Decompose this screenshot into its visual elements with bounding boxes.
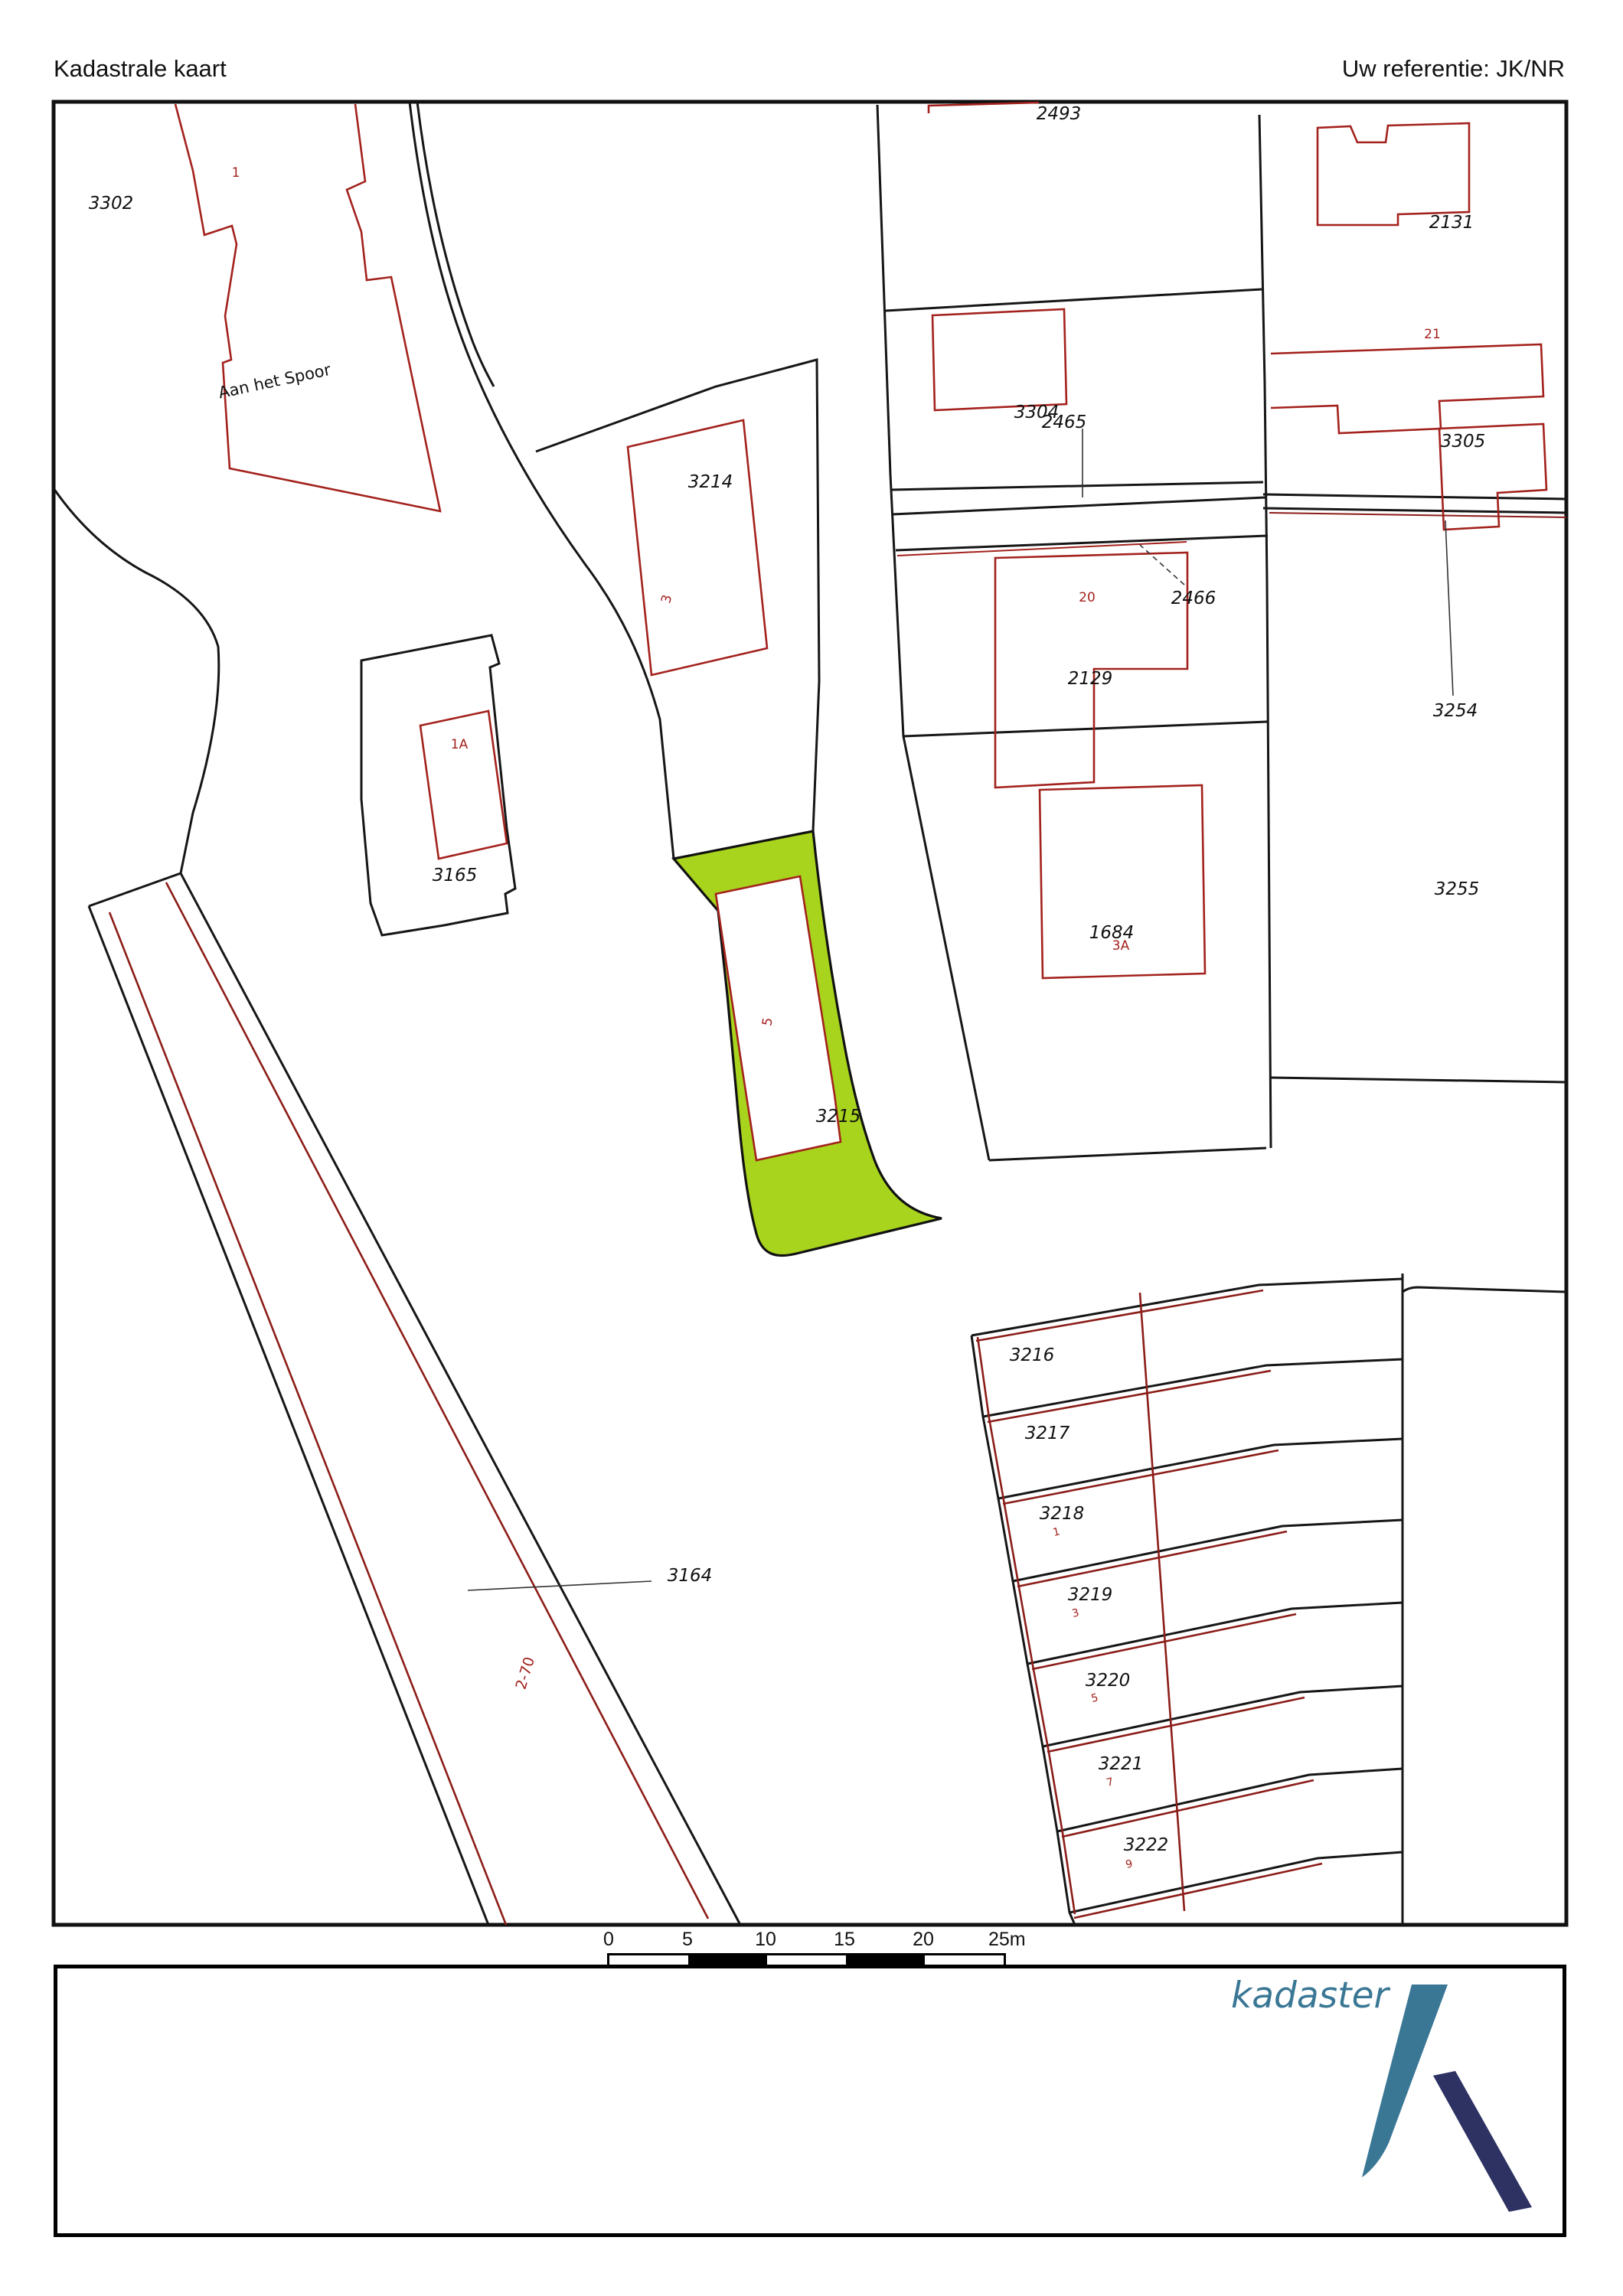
parcel-label: 2465 [1042, 413, 1087, 432]
scale-tick-20: 20 [912, 1929, 935, 1951]
parcel-label: 3218 [1040, 1504, 1085, 1524]
logo-stroke-navy [1433, 2071, 1532, 2212]
parcel-label: 3254 [1433, 701, 1478, 721]
parcel-label: 2466 [1171, 589, 1216, 608]
house-number: 1 [232, 165, 240, 181]
parcel-label: 2131 [1429, 213, 1474, 233]
parcel-label: 2129 [1068, 669, 1113, 689]
parcel-label: 3165 [433, 866, 478, 885]
scale-tick-10: 10 [754, 1929, 777, 1951]
parcel-label: 3219 [1068, 1585, 1113, 1605]
scale-tick-25m: 25m [988, 1929, 1022, 1951]
parcel-label: 3217 [1025, 1424, 1070, 1443]
kadaster-logo: kadaster [1210, 1968, 1562, 2232]
scale-tick-0: 0 [601, 1929, 616, 1951]
parcel-label: 3215 [816, 1107, 861, 1127]
parcel-label: 3221 [1099, 1754, 1144, 1774]
parcel-label: 3216 [1010, 1345, 1055, 1365]
kadastrale-kaart-page: Kadastrale kaart Uw referentie: JK/NR [0, 0, 1623, 2296]
parcel-label: 2493 [1037, 104, 1082, 124]
map-canvas: 3302 2493 2131 3304 2465 3305 2466 2129 … [0, 0, 1623, 1936]
scale-tick-15: 15 [833, 1929, 856, 1951]
parcel-label: 3255 [1435, 879, 1480, 899]
parcel-label: 3164 [668, 1566, 713, 1586]
parcel-label: 3302 [89, 194, 134, 214]
house-number: 3A [1112, 938, 1130, 954]
parcel-label: 3305 [1441, 432, 1486, 452]
parcel-label: 3220 [1086, 1671, 1131, 1691]
kadaster-logo-mark [1210, 1968, 1562, 2232]
house-number: 21 [1424, 327, 1441, 342]
scale-tick-5: 5 [680, 1929, 695, 1951]
parcel-label: 3214 [688, 472, 733, 492]
logo-blade-teal [1362, 1985, 1448, 2177]
house-number: 20 [1079, 590, 1096, 605]
house-number: 1A [451, 737, 469, 752]
parcel-label: 3222 [1124, 1835, 1169, 1855]
